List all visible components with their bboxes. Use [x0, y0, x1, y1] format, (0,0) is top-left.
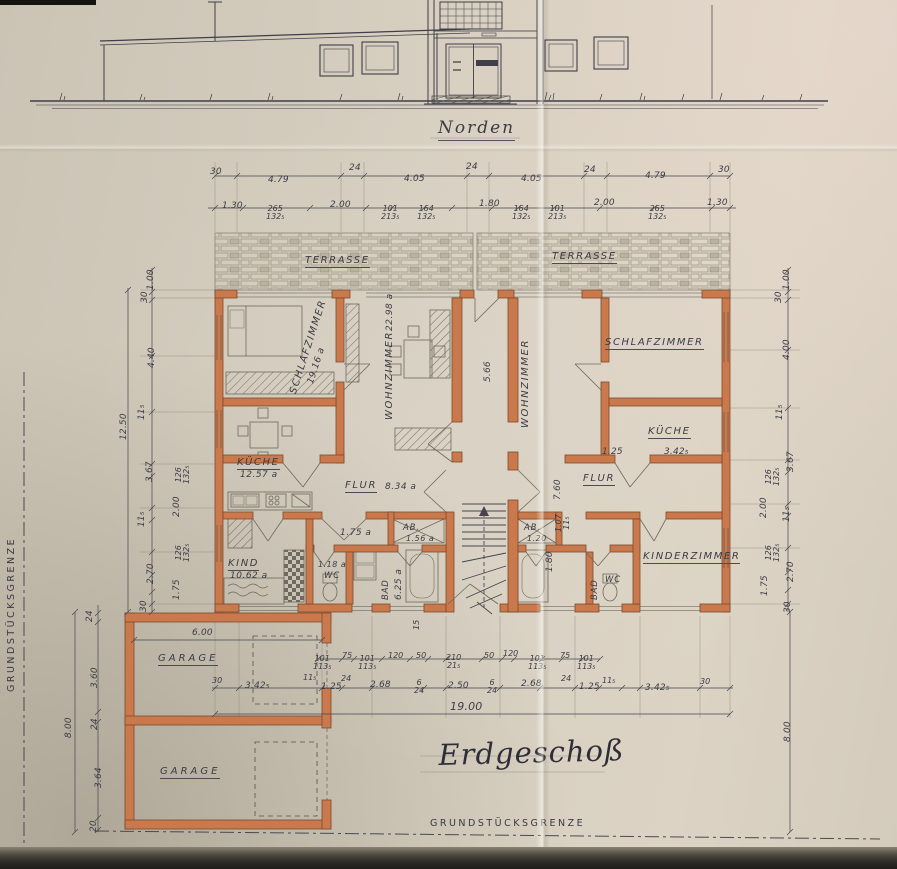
dim: 1.25: [321, 682, 342, 692]
dim: 11₅: [775, 404, 785, 420]
dim: 24: [466, 162, 478, 172]
dim: 8.00: [64, 717, 74, 738]
dim: 7.60: [553, 479, 563, 500]
furniture: [224, 304, 617, 604]
dim: 3.42₅: [664, 447, 689, 457]
dim: 4.79: [645, 171, 666, 181]
room-label-kueche-right: KÜCHE: [648, 426, 691, 439]
room-label-kind-left: KIND: [228, 558, 259, 571]
dim: 4.79: [268, 175, 289, 185]
plan-title: Erdgeschoß: [438, 733, 625, 772]
room-label-ab-left: AB.: [403, 523, 420, 533]
grass-strokes: [60, 92, 802, 100]
elevation-caption: Norden: [438, 118, 515, 141]
dim: 1.25: [579, 682, 600, 692]
dim-stacked: 101213₅: [548, 196, 566, 222]
room-area-kind-left: 10.62 a: [230, 571, 268, 581]
dim-hall: 5.66: [483, 361, 493, 382]
dim: 4.40: [147, 347, 157, 368]
bathtub-left: [406, 550, 438, 602]
dim: 2.68: [370, 680, 391, 690]
dim: 1.75: [172, 579, 182, 600]
dim: 30: [210, 167, 222, 177]
dim-stacked: 126132₅: [166, 466, 192, 484]
dim-stacked: 126132₅: [756, 468, 782, 486]
dim-stacked: 101113₅: [358, 646, 376, 672]
paper-fold-crease-horizontal: [0, 144, 897, 152]
room-label-bad-left: BAD: [381, 579, 391, 600]
dim: 2.50: [448, 681, 469, 691]
photo-edge-top: [0, 0, 96, 5]
dim: 24: [341, 674, 351, 683]
room-label-bad-right: BAD: [590, 579, 600, 600]
dim: 3.67: [786, 451, 796, 472]
dim-stacked: 164132₅: [512, 196, 530, 222]
elevation-drawing: [30, 0, 828, 109]
dim-stacked: 624: [414, 670, 424, 696]
dim: 3.67: [145, 461, 155, 482]
sofa-wohnzimmer-left: [395, 428, 451, 450]
dim-stacked: 21021₅: [446, 645, 461, 671]
dim: 2.70: [786, 561, 796, 582]
dim: 50: [416, 651, 426, 660]
dim: 1.25: [602, 447, 623, 457]
dim: 3.42₅: [245, 681, 270, 691]
table-wohnzimmer-left: [404, 340, 432, 378]
dim: 11₅: [782, 506, 792, 522]
room-area-wohnzimmer-left: 22.98 a: [385, 293, 395, 331]
dim-stacked: 101213₅: [381, 196, 399, 222]
dim: 4.05: [404, 174, 425, 184]
room-label-kueche-left: KÜCHE: [237, 457, 280, 470]
dim: 30: [774, 291, 784, 303]
dim: 24: [561, 674, 571, 683]
dim: 1.75: [760, 575, 770, 596]
dim-stacked: 126132₅: [756, 544, 782, 562]
boundary-label-bottom: GRUNDSTÜCKSGRENZE: [430, 818, 585, 829]
dim: 24: [85, 610, 95, 622]
dim: 2.00: [759, 497, 769, 518]
elevation-windows: [320, 37, 628, 76]
dim-stacked: 265132₅: [648, 196, 666, 222]
terrace-left-label: TERRASSE: [305, 255, 370, 268]
bed-kind-left: [224, 578, 284, 604]
wardrobe-wohnzimmer-left: [346, 304, 359, 382]
dim: 2.00: [330, 200, 351, 210]
cupboard-kind-left: [228, 518, 252, 548]
dim: 1.00: [782, 269, 792, 290]
dim: 3.42₅: [645, 683, 670, 693]
dim: 20: [89, 820, 99, 832]
room-area-bad-left: 6.25 a: [394, 569, 404, 600]
dim: 30: [700, 677, 710, 686]
dim-step: 15: [412, 620, 421, 630]
dim: 24: [90, 718, 100, 730]
room-area-kueche-left: 12.57 a: [240, 470, 278, 480]
terrace-paving: [215, 233, 730, 290]
glass-block-window: [440, 2, 502, 29]
dim: 11₅: [137, 511, 147, 527]
dim: 1.00: [146, 269, 156, 290]
room-label-flur-right: FLUR: [583, 473, 615, 486]
dim: 4.00: [782, 339, 792, 360]
dim-stacked: 101113₅: [577, 646, 595, 672]
dim: 8.00: [783, 721, 793, 742]
room-area-vorraum-left: 1.75 a: [340, 528, 371, 538]
dim: 12.50: [119, 413, 129, 440]
dim: 120: [388, 651, 403, 660]
dim-stacked: 101113₅: [313, 646, 331, 672]
paper-fold-crease: [536, 0, 550, 869]
photo-edge-bottom: [0, 847, 897, 869]
dim: 1.30: [222, 201, 243, 211]
dim-stacked: 624: [487, 670, 497, 696]
dim: 2.00: [594, 198, 615, 208]
dim: 30: [718, 165, 730, 175]
cabinet-wohnzimmer-left: [430, 310, 450, 378]
dim: 24: [349, 163, 361, 173]
boundary-label-left: GRUNDSTÜCKSGRENZE: [6, 537, 17, 692]
walls: [125, 290, 730, 829]
terrace-right-label: TERRASSE: [552, 251, 617, 264]
checkered-wardrobe-kind: [284, 550, 304, 602]
room-label-wc-right: WC: [605, 575, 621, 585]
room-area-wc-left: 1.18 a: [318, 560, 346, 569]
room-label-flur-left: FLUR: [345, 480, 377, 493]
carport-posts: [104, 2, 437, 101]
room-label-wc-left: WC: [324, 571, 340, 581]
dim-stacked: 265132₅: [266, 196, 284, 222]
dim: 1.30: [707, 198, 728, 208]
room-area-flur-left: 8.34 a: [385, 482, 416, 492]
dim: 2.70: [146, 563, 156, 584]
dim: 75: [342, 651, 352, 660]
room-label-wohnzimmer-left: WOHNZIMMER: [384, 331, 395, 420]
dim: 11₅: [602, 676, 615, 685]
dim: 11₅: [303, 673, 316, 682]
sink-bad-left: [354, 548, 376, 580]
garage-bottom-label: GARAGE: [160, 766, 220, 779]
kitchen-table-left: [250, 422, 278, 448]
dim-stacked: 164132₅: [417, 196, 435, 222]
dim: 3.60: [90, 667, 100, 688]
dim: 11₅: [137, 404, 147, 420]
dim: 75: [560, 651, 570, 660]
dim: 30: [139, 600, 149, 612]
room-label-wohnzimmer-right: WOHNZIMMER: [520, 339, 531, 428]
bed-schlafzimmer-left: [228, 306, 302, 356]
dim: 30: [140, 291, 150, 303]
dim: 30: [212, 676, 222, 685]
entrance-walls: [428, 0, 543, 104]
room-label-kinderzimmer-right: KINDERZIMMER: [643, 551, 740, 564]
dim: 120: [503, 649, 518, 658]
scanned-floor-plan-sheet: Norden 30 4.79 24 4.05 24 4.05 24 4.79 3…: [0, 0, 897, 869]
dim: 1.80: [479, 199, 500, 209]
staircase: [462, 504, 506, 614]
dim-total-width: 19.00: [450, 700, 483, 713]
room-area-ab-left: 1.56 a: [406, 534, 434, 543]
dim: 30: [783, 601, 793, 613]
garage-top-label: GARAGE: [158, 653, 218, 666]
dim: 50: [484, 651, 494, 660]
dim: 6.00: [192, 628, 213, 638]
dim: 2.00: [172, 496, 182, 517]
dim: 3.64: [94, 767, 104, 788]
dim: 24: [584, 165, 596, 175]
room-label-schlafzimmer-right: SCHLAFZIMMER: [605, 337, 704, 350]
dim-stacked: 126132₅: [166, 544, 192, 562]
